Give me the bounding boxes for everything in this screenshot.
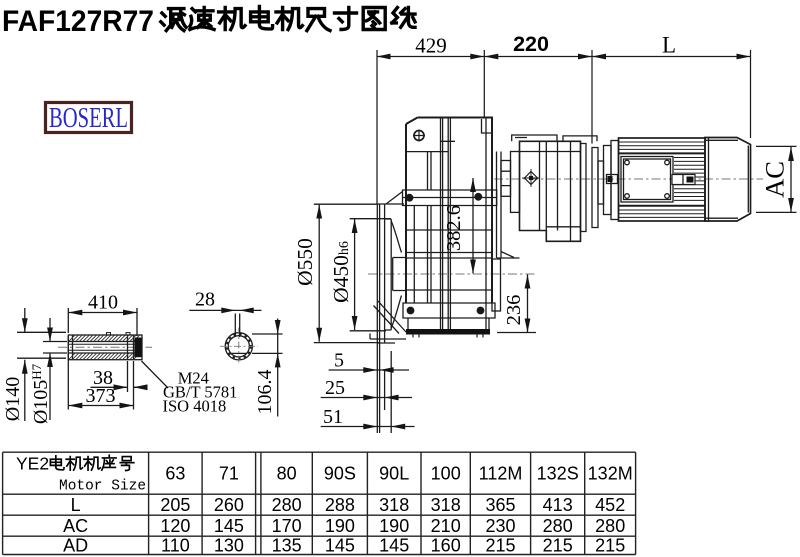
svg-text:318: 318 [431,495,461,515]
svg-text:132S: 132S [537,464,579,484]
svg-text:230: 230 [485,516,515,536]
svg-text:130: 130 [214,536,244,556]
svg-text:135: 135 [272,536,302,556]
svg-text:288: 288 [325,495,355,515]
svg-text:100: 100 [431,464,461,484]
svg-text:210: 210 [431,516,461,536]
svg-text:220: 220 [513,32,549,56]
svg-text:318: 318 [379,495,409,515]
svg-text:410: 410 [88,292,118,314]
svg-text:132M: 132M [588,464,633,484]
svg-text:90L: 90L [379,464,409,484]
svg-text:413: 413 [543,495,573,515]
svg-text:51: 51 [323,406,343,428]
svg-text:28: 28 [195,289,215,311]
svg-text:236: 236 [503,295,525,326]
svg-text:373: 373 [86,385,116,407]
svg-text:63: 63 [165,464,185,484]
svg-text:190: 190 [325,516,355,536]
svg-text:145: 145 [379,536,409,556]
svg-text:90S: 90S [324,464,356,484]
svg-text:170: 170 [272,516,302,536]
svg-text:215: 215 [543,536,573,556]
svg-text:YE2: YE2 [16,454,49,474]
svg-text:205: 205 [160,495,190,515]
svg-text:452: 452 [595,495,625,515]
svg-text:429: 429 [415,34,447,58]
svg-text:190: 190 [379,516,409,536]
svg-text:ISO 4018: ISO 4018 [163,397,227,416]
svg-text:280: 280 [543,516,573,536]
svg-text:BOSERL: BOSERL [49,102,128,134]
svg-text:382.6: 382.6 [443,205,465,251]
svg-text:71: 71 [219,464,239,484]
svg-text:25: 25 [325,377,345,399]
svg-text:5: 5 [334,350,344,372]
svg-text:80: 80 [277,464,297,484]
svg-text:365: 365 [485,495,515,515]
svg-text:L: L [71,495,81,515]
svg-text:112M: 112M [479,464,523,484]
svg-text:AD: AD [63,536,88,556]
svg-text:280: 280 [595,516,625,536]
svg-text:215: 215 [485,536,515,556]
svg-text:160: 160 [431,536,461,556]
svg-text:AC: AC [63,516,88,536]
svg-text:AC: AC [760,161,790,198]
svg-text:106.4: 106.4 [254,370,276,415]
svg-text:145: 145 [214,516,244,536]
svg-text:260: 260 [214,495,244,515]
svg-text:215: 215 [595,536,625,556]
svg-text:Motor Size: Motor Size [59,479,146,495]
svg-text:L: L [662,33,676,58]
svg-text:120: 120 [160,516,190,536]
svg-text:280: 280 [272,495,302,515]
svg-text:Ø550: Ø550 [293,238,317,286]
svg-text:145: 145 [325,536,355,556]
svg-text:110: 110 [161,536,190,556]
svg-text:Ø140: Ø140 [2,377,24,421]
svg-text:FAF127R77: FAF127R77 [2,5,154,38]
